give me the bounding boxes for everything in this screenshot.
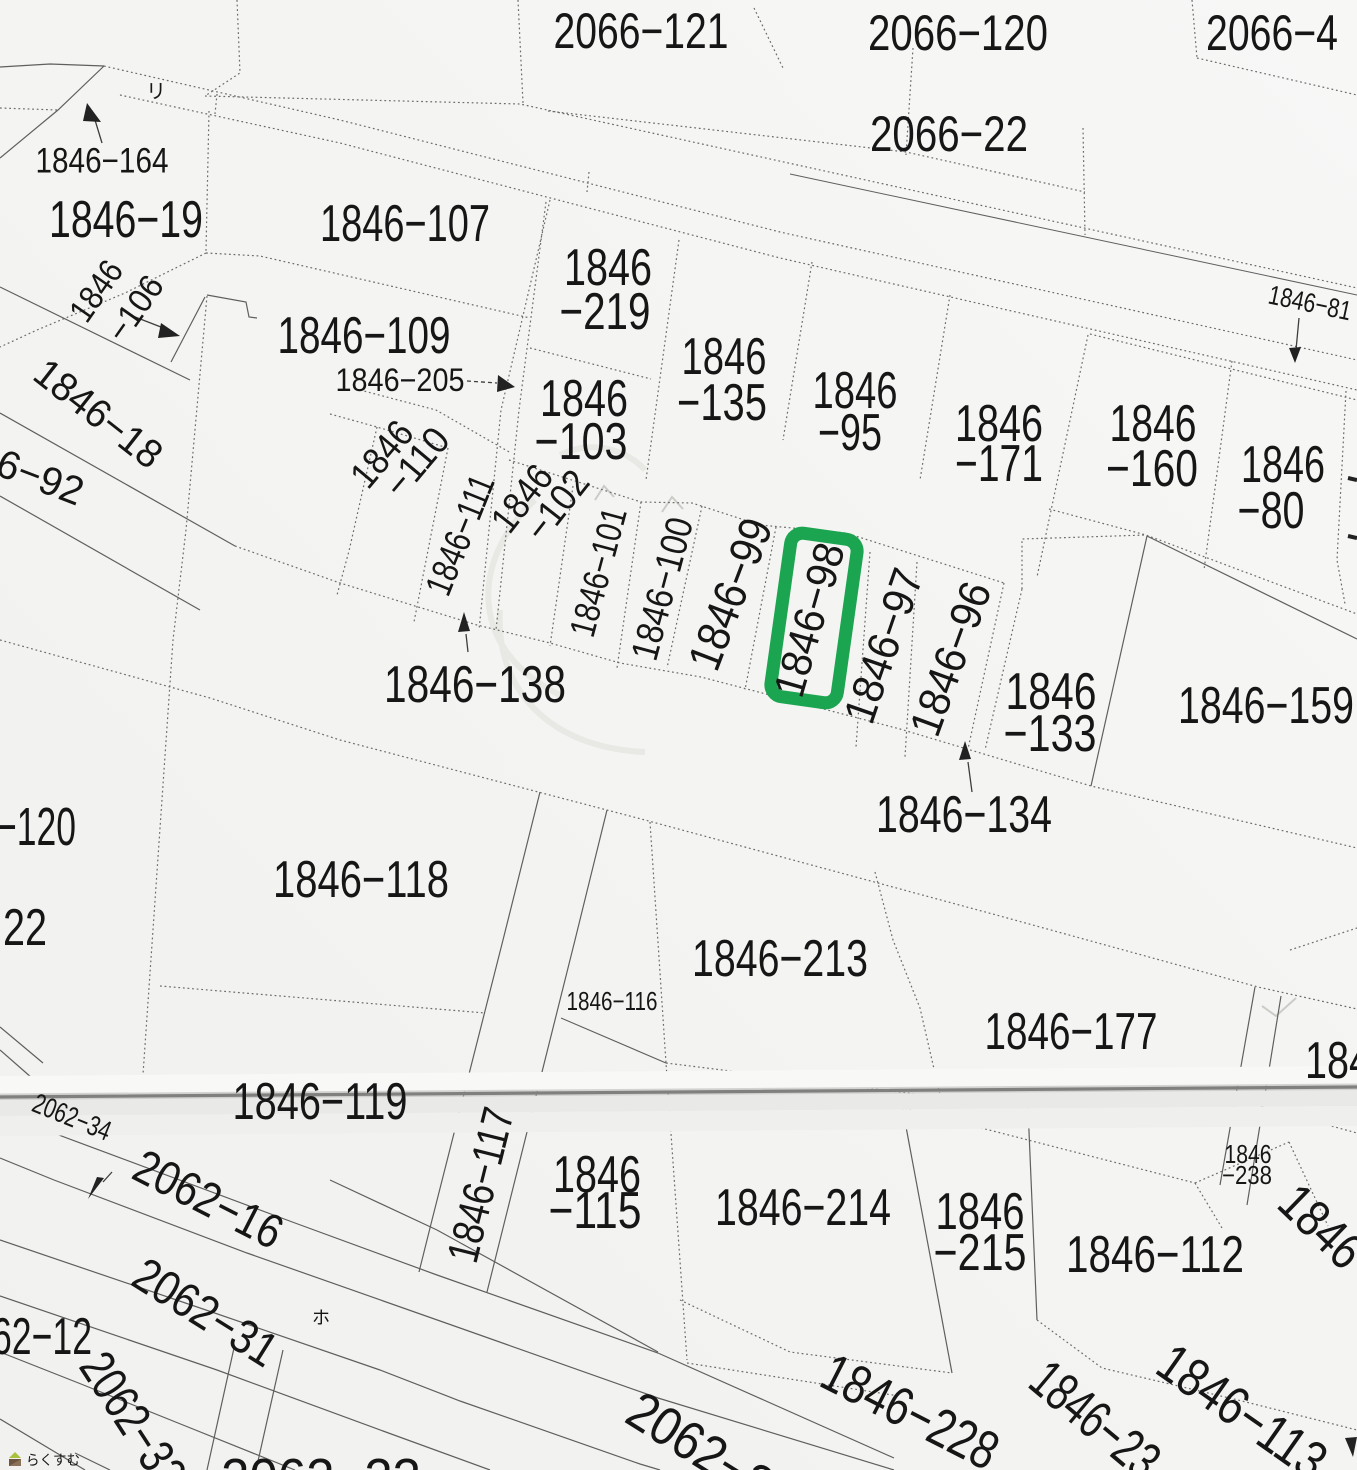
svg-text:2066−4: 2066−4 [1206, 5, 1338, 61]
svg-text:−219: −219 [560, 283, 651, 341]
svg-text:2066−22: 2066−22 [870, 106, 1028, 162]
svg-text:−160: −160 [1106, 440, 1198, 498]
svg-text:−171: −171 [955, 435, 1043, 493]
svg-text:1846−138: 1846−138 [384, 656, 566, 714]
svg-text:1846−214: 1846−214 [715, 1179, 891, 1237]
svg-text:−238: −238 [1222, 1160, 1272, 1190]
svg-text:1846−134: 1846−134 [876, 786, 1052, 844]
svg-text:1846−118: 1846−118 [273, 851, 449, 909]
svg-text:−215: −215 [934, 1224, 1027, 1282]
svg-text:リ: リ [146, 81, 166, 103]
svg-text:1846−159: 1846−159 [1178, 677, 1354, 735]
svg-text:1846−116: 1846−116 [567, 986, 658, 1016]
svg-text:−80: −80 [1238, 482, 1305, 540]
svg-text:−135: −135 [677, 374, 767, 432]
svg-text:−115: −115 [549, 1182, 642, 1240]
svg-text:1846−19: 1846−19 [49, 191, 203, 249]
svg-text:1846−213: 1846−213 [692, 930, 868, 988]
svg-text:−103: −103 [535, 413, 628, 471]
svg-text:2066−121: 2066−121 [554, 3, 729, 59]
svg-text:184: 184 [1305, 1032, 1357, 1090]
svg-text:22: 22 [3, 899, 47, 957]
svg-text:−120: −120 [0, 797, 76, 857]
svg-text:62−12: 62−12 [0, 1308, 92, 1366]
svg-text:1846−177: 1846−177 [985, 1003, 1158, 1061]
svg-text:2062−23: 2062−23 [221, 1448, 421, 1470]
svg-text:1846−109: 1846−109 [278, 307, 451, 365]
svg-text:1846−119: 1846−119 [233, 1073, 408, 1131]
svg-text:1846−112: 1846−112 [1066, 1226, 1244, 1284]
svg-text:1846−107: 1846−107 [320, 195, 490, 253]
svg-text:1846−205: 1846−205 [336, 362, 465, 398]
svg-text:−95: −95 [818, 404, 882, 462]
svg-text:2066−120: 2066−120 [868, 5, 1048, 61]
svg-text:−133: −133 [1004, 705, 1097, 763]
svg-text:ホ: ホ [312, 1308, 330, 1328]
svg-text:1846−164: 1846−164 [36, 142, 169, 181]
svg-text:らくすむ: らくすむ [26, 1452, 80, 1468]
